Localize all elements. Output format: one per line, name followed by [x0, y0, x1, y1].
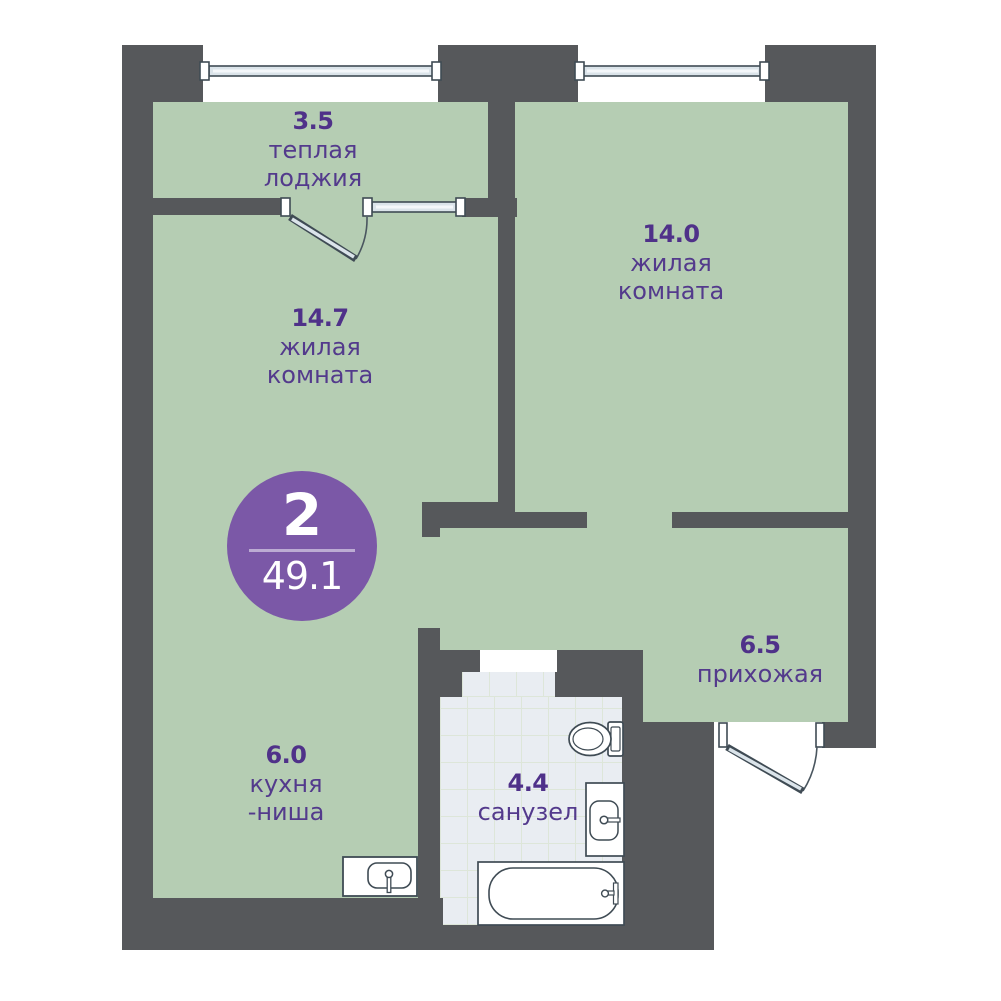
bathtub-icon: [478, 862, 624, 925]
total-area: 49.1: [262, 556, 343, 596]
room-area: 6.0: [248, 740, 325, 770]
room-label-living-1: 14.7 жилая комната: [267, 303, 373, 389]
room-count: 2: [282, 486, 322, 544]
room-area: 14.7: [267, 303, 373, 333]
room-name: жилая: [618, 249, 724, 277]
room-name: -ниша: [248, 798, 325, 826]
apartment-badge: 2 49.1: [227, 471, 377, 621]
room-area: 4.4: [478, 768, 579, 798]
toilet-icon: [569, 722, 623, 756]
floor-plan: 3.5 теплая лоджия 14.7 жилая комната 14.…: [0, 0, 1001, 1001]
room-name: лоджия: [264, 164, 362, 192]
room-name: комната: [267, 361, 373, 389]
kitchen-sink-icon: [343, 857, 417, 896]
room-label-loggia: 3.5 теплая лоджия: [264, 106, 362, 192]
window-icon: [200, 62, 441, 80]
window-icon: [575, 62, 769, 80]
room-label-bathroom: 4.4 санузел: [478, 768, 579, 826]
room-area: 14.0: [618, 219, 724, 249]
room-label-kitchen: 6.0 кухня -ниша: [248, 740, 325, 826]
sink-icon: [586, 783, 624, 856]
room-label-living-2: 14.0 жилая комната: [618, 219, 724, 305]
room-area: 6.5: [697, 630, 823, 660]
window-icon: [363, 198, 465, 216]
room-name: теплая: [264, 136, 362, 164]
room-name: санузел: [478, 798, 579, 826]
entrance-door-icon: [719, 723, 824, 791]
room-name: комната: [618, 277, 724, 305]
room-label-hallway: 6.5 прихожая: [697, 630, 823, 688]
balcony-door-icon: [281, 198, 367, 259]
plan-symbols: [0, 0, 1001, 1001]
room-name: жилая: [267, 333, 373, 361]
room-name: кухня: [248, 770, 325, 798]
room-area: 3.5: [264, 106, 362, 136]
room-name: прихожая: [697, 660, 823, 688]
badge-divider: [249, 549, 355, 552]
